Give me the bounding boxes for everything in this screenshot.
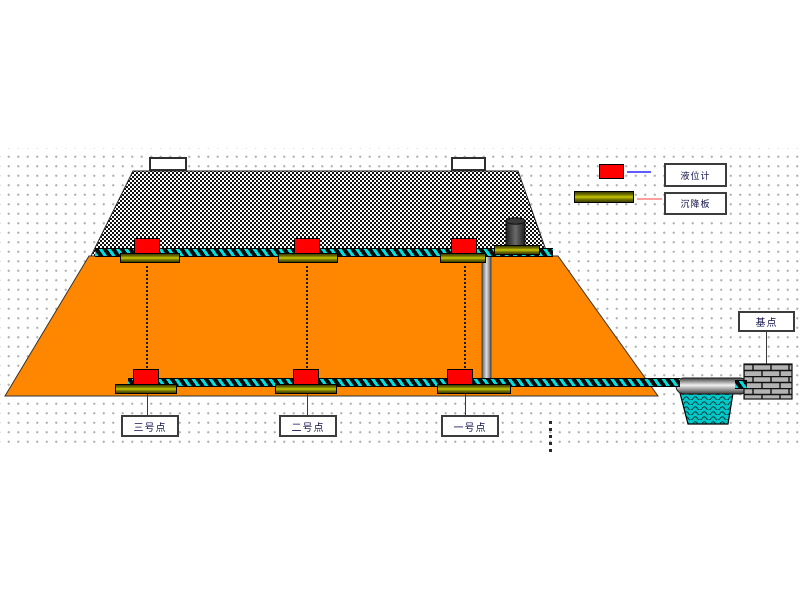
- level-gauge-upper-1: [451, 238, 477, 254]
- settlement-plate-upper-1: [440, 253, 486, 263]
- crest-marker-left: [149, 157, 187, 171]
- point-label-2-text: 二号点: [292, 419, 325, 434]
- level-gauge-lower-1: [447, 369, 473, 385]
- point-label-3: 三号点: [121, 415, 179, 437]
- label-connector-point2: [307, 394, 308, 415]
- legend-swatch-level-gauge: [599, 164, 624, 179]
- dotted-link-point2: [306, 266, 308, 376]
- label-connector-point3: [147, 394, 148, 415]
- legend-label-settlement-plate-text: 沉降板: [680, 197, 710, 210]
- benchmark-tube-stub: [735, 380, 747, 389]
- legend-label-level-gauge: 液位计: [664, 163, 727, 187]
- point-label-1-text: 一号点: [454, 419, 487, 434]
- standpipe-cap: [506, 218, 525, 247]
- benchmark-label: 基点: [738, 311, 795, 332]
- label-connector-benchmark: [766, 332, 767, 364]
- level-gauge-lower-3: [133, 369, 159, 385]
- point-label-3-text: 三号点: [134, 419, 167, 434]
- diagram-shapes-layer: [0, 0, 800, 600]
- point-label-2: 二号点: [279, 415, 337, 437]
- benchmark-label-text: 基点: [756, 314, 778, 329]
- label-connector-point1: [465, 394, 466, 415]
- settlement-plate-lower-3: [115, 384, 177, 394]
- dotted-link-point1: [464, 266, 466, 376]
- embankment-body: [5, 256, 658, 396]
- benchmark-brick-monument: [744, 364, 792, 399]
- settlement-plate-upper-3: [120, 253, 180, 263]
- legend-label-settlement-plate: 沉降板: [664, 192, 727, 215]
- settlement-plate-upper-2: [278, 253, 338, 263]
- dotted-link-point3: [146, 266, 148, 376]
- settlement-plate-lower-1: [437, 384, 511, 394]
- level-gauge-upper-2: [294, 238, 320, 254]
- vertical-riser-pipe: [482, 256, 491, 388]
- dotted-tick-mark: [549, 421, 552, 453]
- diagram-canvas: 三号点 二号点 一号点 基点 液位计 沉降板: [0, 0, 800, 600]
- legend-label-level-gauge-text: 液位计: [680, 169, 710, 182]
- crest-marker-right: [451, 157, 486, 171]
- standpipe-base-plate: [494, 245, 540, 255]
- settlement-plate-lower-2: [275, 384, 337, 394]
- legend-swatch-settlement-plate: [574, 191, 634, 203]
- legend-leader-line-pink: [637, 198, 662, 200]
- level-gauge-upper-3: [134, 238, 160, 254]
- level-gauge-lower-2: [293, 369, 319, 385]
- lower-liquid-tube: [128, 378, 680, 387]
- water-basin: [680, 393, 733, 424]
- legend-leader-line-blue: [627, 171, 651, 173]
- point-label-1: 一号点: [441, 415, 499, 437]
